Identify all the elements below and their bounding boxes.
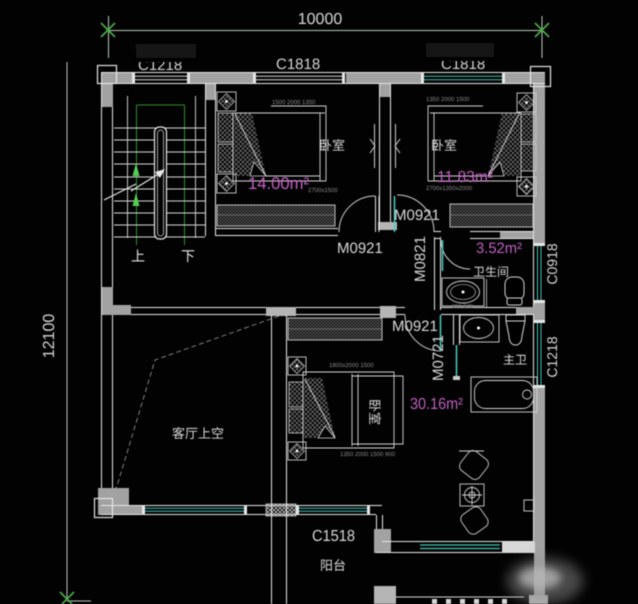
svg-text:1500 2000 1350: 1500 2000 1350	[272, 99, 316, 106]
svg-text:3.52m²: 3.52m²	[476, 240, 522, 257]
svg-text:C0918: C0918	[544, 243, 560, 284]
svg-text:下: 下	[181, 248, 195, 264]
svg-text:C1818: C1818	[276, 56, 320, 73]
svg-text:12100: 12100	[41, 314, 58, 359]
svg-text:卫生间: 卫生间	[473, 265, 509, 279]
svg-text:30.16m²: 30.16m²	[410, 396, 464, 413]
svg-text:M0921: M0921	[394, 207, 440, 224]
svg-text:客厅上空: 客厅上空	[172, 426, 224, 441]
svg-text:11.83m²: 11.83m²	[437, 169, 494, 186]
svg-text:M0721: M0721	[430, 335, 447, 381]
svg-text:卧室: 卧室	[367, 399, 382, 425]
svg-text:C1518: C1518	[312, 528, 355, 545]
svg-text:2700x1350x2000: 2700x1350x2000	[426, 185, 473, 192]
svg-text:14.00m²: 14.00m²	[248, 174, 309, 193]
svg-text:M0921: M0921	[392, 318, 438, 335]
svg-text:卧室: 卧室	[319, 138, 345, 153]
svg-text:1350 2000 1500: 1350 2000 1500	[426, 96, 470, 103]
svg-text:800x500: 800x500	[452, 304, 473, 310]
svg-text:上: 上	[131, 248, 145, 264]
svg-text:C1218: C1218	[544, 336, 560, 377]
svg-text:主卫: 主卫	[503, 353, 527, 367]
svg-text:卧室: 卧室	[431, 138, 457, 153]
svg-text:M0921: M0921	[337, 240, 383, 257]
svg-text:阳台: 阳台	[320, 558, 346, 573]
svg-text:1350 2000 1500 900: 1350 2000 1500 900	[340, 451, 396, 458]
svg-text:M0821: M0821	[412, 236, 429, 282]
svg-text:2700x1500: 2700x1500	[308, 187, 338, 194]
svg-text:10000: 10000	[298, 11, 343, 28]
svg-text:1800x2000 1500: 1800x2000 1500	[329, 362, 374, 369]
